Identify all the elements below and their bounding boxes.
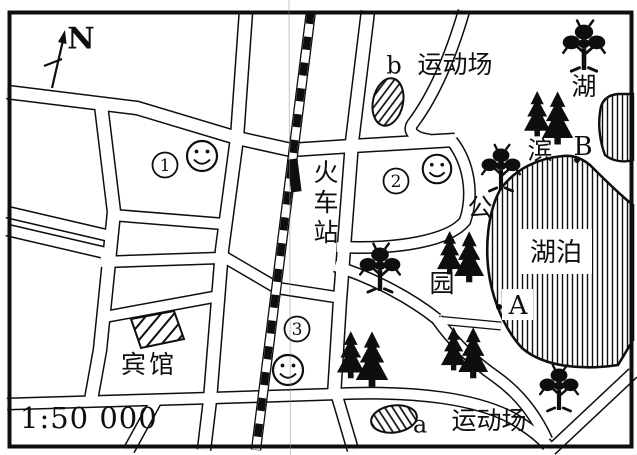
park-label-char-3: 公 (467, 193, 492, 222)
compass-north-label: N (67, 22, 94, 57)
station-label-char-1: 火 (313, 158, 338, 187)
scanned-map-page: N 湖泊 A B 火 车 站 湖 滨 公 园 b 运动场 a 运动场 宾馆 1:… (0, 0, 637, 455)
map-scale-label: 1:50 000 (20, 401, 158, 435)
station-label-char-3: 站 (313, 218, 338, 247)
smiley-face-icon (273, 355, 303, 385)
site-marker-1: 1 (153, 153, 178, 178)
point-a-dot (496, 304, 502, 310)
site-marker-3: 3 (285, 317, 310, 342)
sports-field-b-point-label: b (386, 51, 401, 79)
site-marker-1-number: 1 (160, 156, 171, 176)
city-map: N 湖泊 A B 火 车 站 湖 滨 公 园 b 运动场 a 运动场 宾馆 1:… (0, 0, 637, 455)
site-marker-2-number: 2 (391, 172, 402, 192)
station-label-char-2: 车 (313, 188, 338, 217)
smiley-face-icon (423, 155, 452, 184)
sports-field-a-label: 运动场 (451, 406, 526, 435)
lake-north-lobe (599, 94, 633, 161)
lake-label: 湖泊 (530, 238, 582, 268)
point-a-label: A (508, 291, 529, 321)
sports-field-a-point-label: a (413, 410, 427, 438)
station-label: 火 车 站 (313, 158, 338, 247)
park-label-char-2: 滨 (527, 136, 552, 165)
point-b-dot (574, 157, 580, 163)
sports-field-b-label: 运动场 (417, 50, 492, 79)
smiley-face-icon (187, 141, 217, 171)
hotel-label: 宾馆 (121, 350, 177, 379)
site-marker-2: 2 (384, 169, 409, 194)
park-label-char-1: 湖 (571, 72, 596, 101)
park-label-char-4: 园 (429, 269, 454, 298)
site-marker-3-number: 3 (292, 320, 303, 340)
